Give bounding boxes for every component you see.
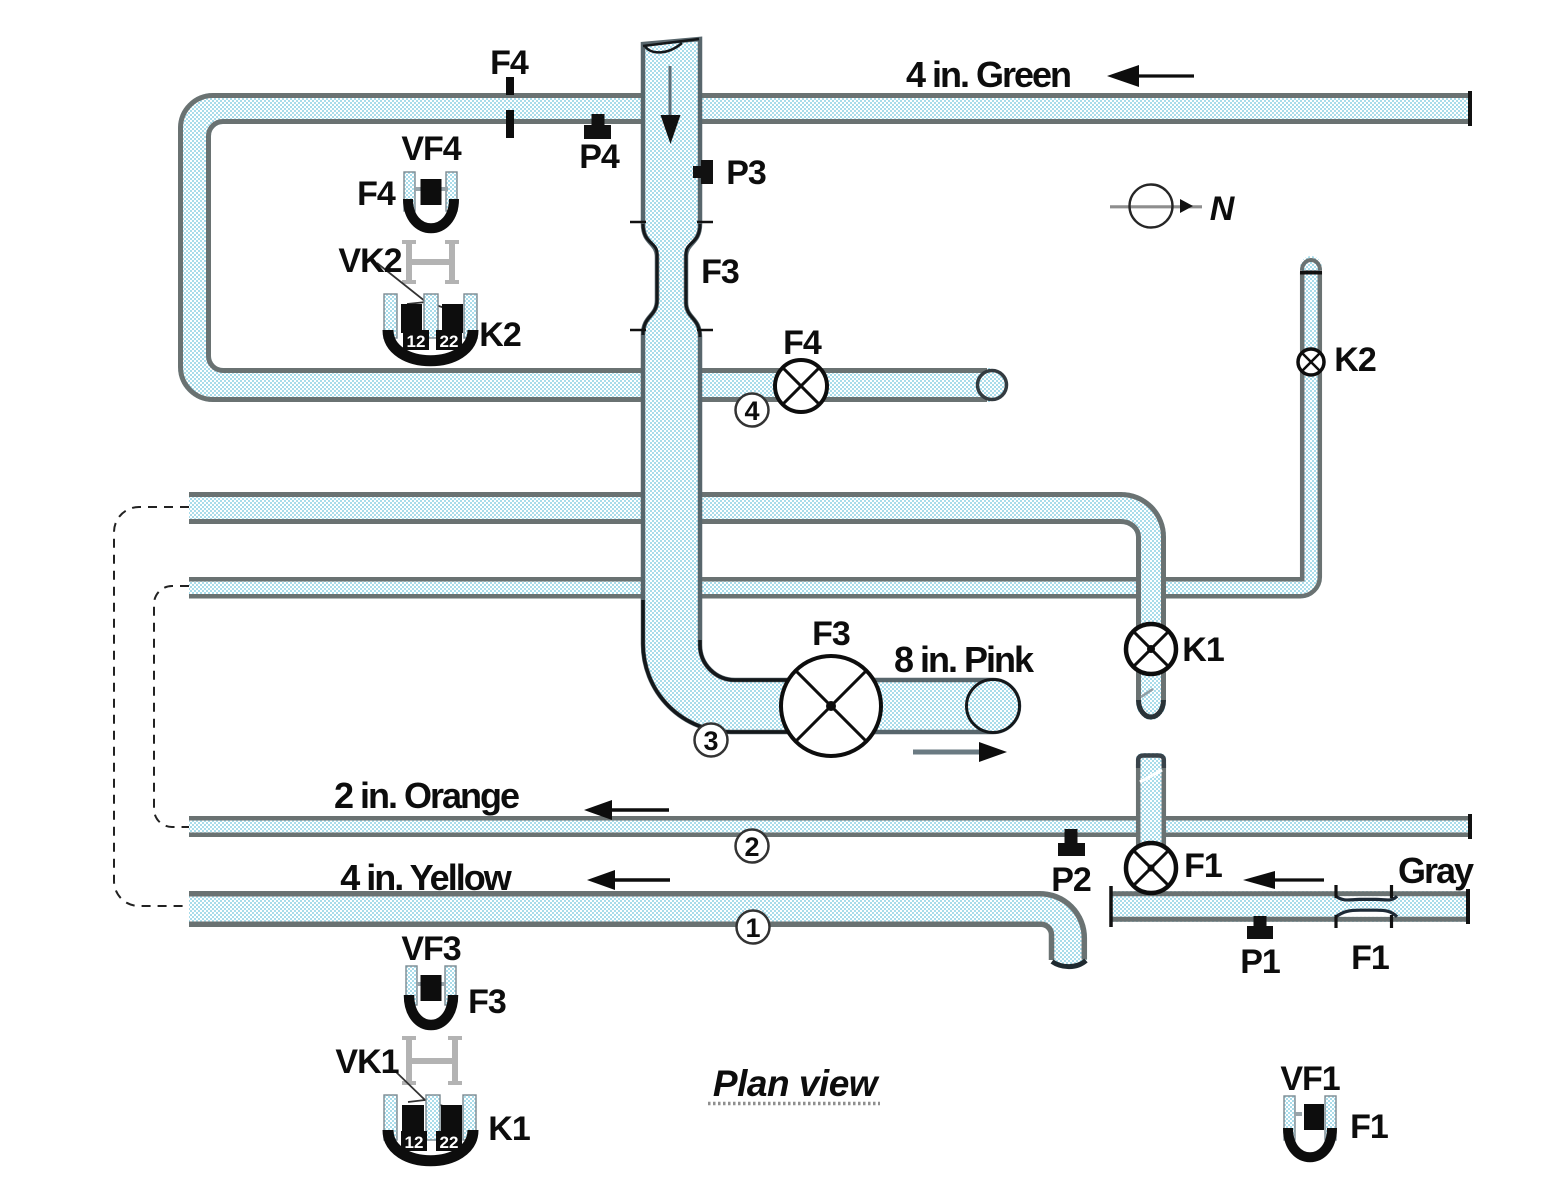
svg-text:VK2: VK2 xyxy=(338,242,401,280)
svg-text:VK1: VK1 xyxy=(335,1043,398,1081)
svg-text:12: 12 xyxy=(407,332,426,351)
svg-text:Gray: Gray xyxy=(1398,850,1474,891)
svg-text:2: 2 xyxy=(744,832,759,862)
svg-text:F4: F4 xyxy=(490,44,529,82)
svg-text:F3: F3 xyxy=(701,253,739,291)
svg-text:12: 12 xyxy=(405,1133,424,1152)
svg-text:F1: F1 xyxy=(1351,939,1389,977)
svg-text:8 in. Pink: 8 in. Pink xyxy=(894,639,1035,680)
svg-text:4 in. Green: 4 in. Green xyxy=(906,54,1070,95)
svg-text:F4: F4 xyxy=(357,175,396,213)
svg-text:F1: F1 xyxy=(1184,847,1222,885)
svg-text:Plan view: Plan view xyxy=(713,1063,880,1104)
svg-text:F3: F3 xyxy=(812,615,850,653)
svg-text:1: 1 xyxy=(745,913,760,943)
svg-text:4 in. Yellow: 4 in. Yellow xyxy=(340,857,512,898)
svg-text:P4: P4 xyxy=(579,138,620,176)
svg-text:K2: K2 xyxy=(479,316,521,354)
svg-text:F4: F4 xyxy=(783,324,822,362)
svg-text:22: 22 xyxy=(440,1133,459,1152)
svg-text:22: 22 xyxy=(440,332,459,351)
svg-text:P3: P3 xyxy=(726,154,766,192)
svg-text:P1: P1 xyxy=(1240,943,1280,981)
svg-text:K1: K1 xyxy=(1182,631,1224,669)
svg-text:3: 3 xyxy=(703,726,718,756)
svg-text:N: N xyxy=(1210,190,1236,228)
svg-text:F1: F1 xyxy=(1350,1108,1388,1146)
svg-text:P2: P2 xyxy=(1051,861,1091,899)
svg-text:VF1: VF1 xyxy=(1280,1060,1339,1098)
svg-text:4: 4 xyxy=(744,396,759,426)
svg-text:K1: K1 xyxy=(488,1110,530,1148)
svg-text:F3: F3 xyxy=(468,983,506,1021)
svg-text:VF4: VF4 xyxy=(401,130,461,168)
svg-text:2 in. Orange: 2 in. Orange xyxy=(334,775,519,816)
svg-text:VF3: VF3 xyxy=(401,930,460,968)
svg-text:K2: K2 xyxy=(1334,341,1376,379)
